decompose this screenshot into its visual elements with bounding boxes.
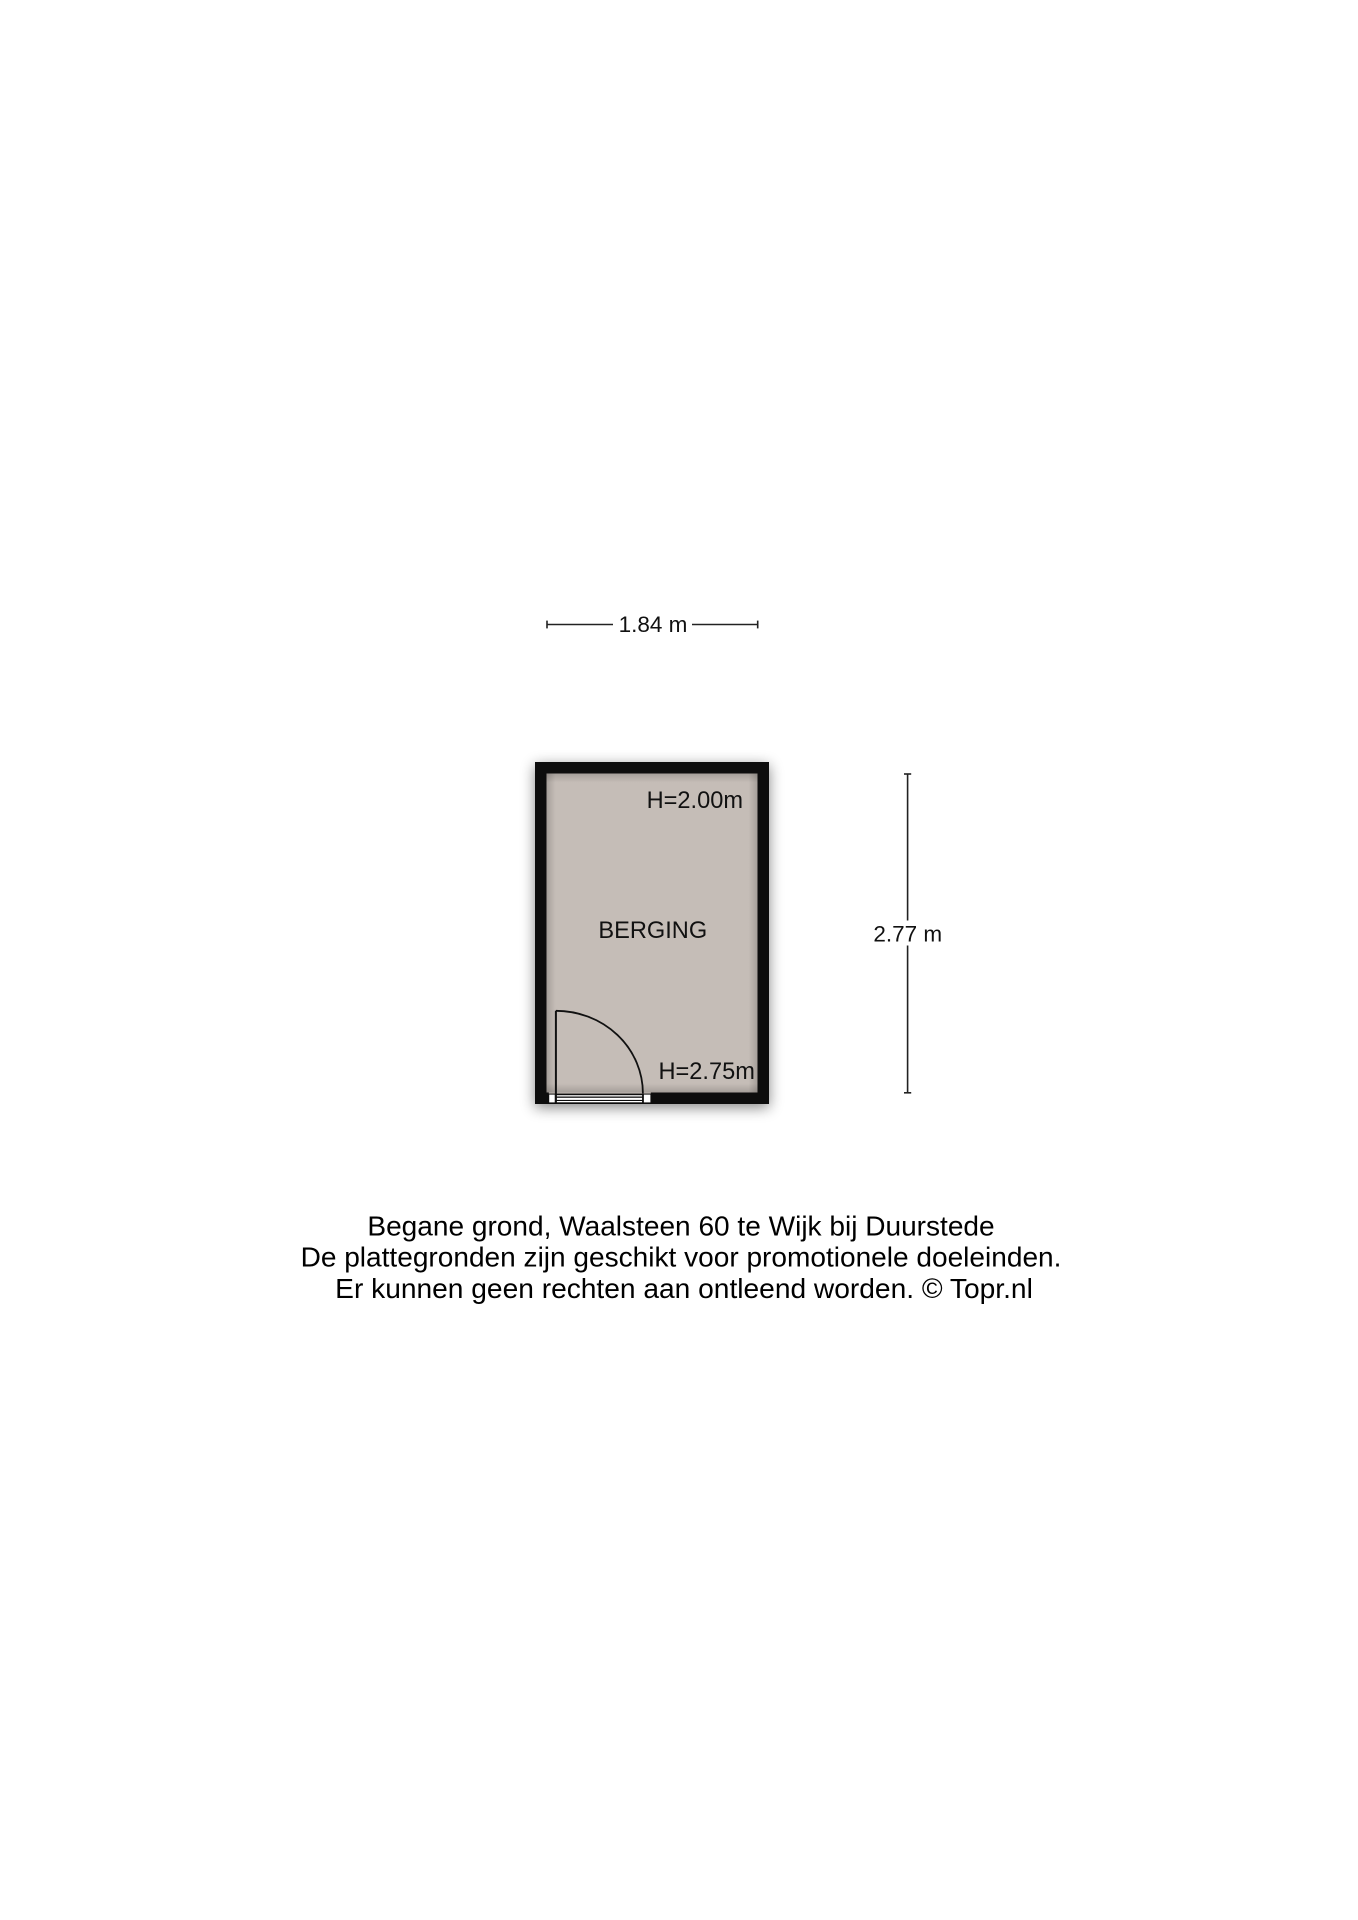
svg-text:1.84 m: 1.84 m — [619, 612, 688, 637]
svg-text:2.77 m: 2.77 m — [873, 922, 942, 947]
svg-text:Begane grond, Waalsteen 60 te: Begane grond, Waalsteen 60 te Wijk bij D… — [367, 1211, 994, 1242]
svg-text:H=2.00m: H=2.00m — [647, 788, 743, 814]
svg-text:BERGING: BERGING — [598, 918, 707, 944]
svg-text:Er kunnen geen rechten aan ont: Er kunnen geen rechten aan ontleend word… — [335, 1273, 1033, 1304]
svg-text:H=2.75m: H=2.75m — [658, 1059, 754, 1085]
svg-text:De plattegronden zijn geschikt: De plattegronden zijn geschikt voor prom… — [301, 1242, 1062, 1273]
